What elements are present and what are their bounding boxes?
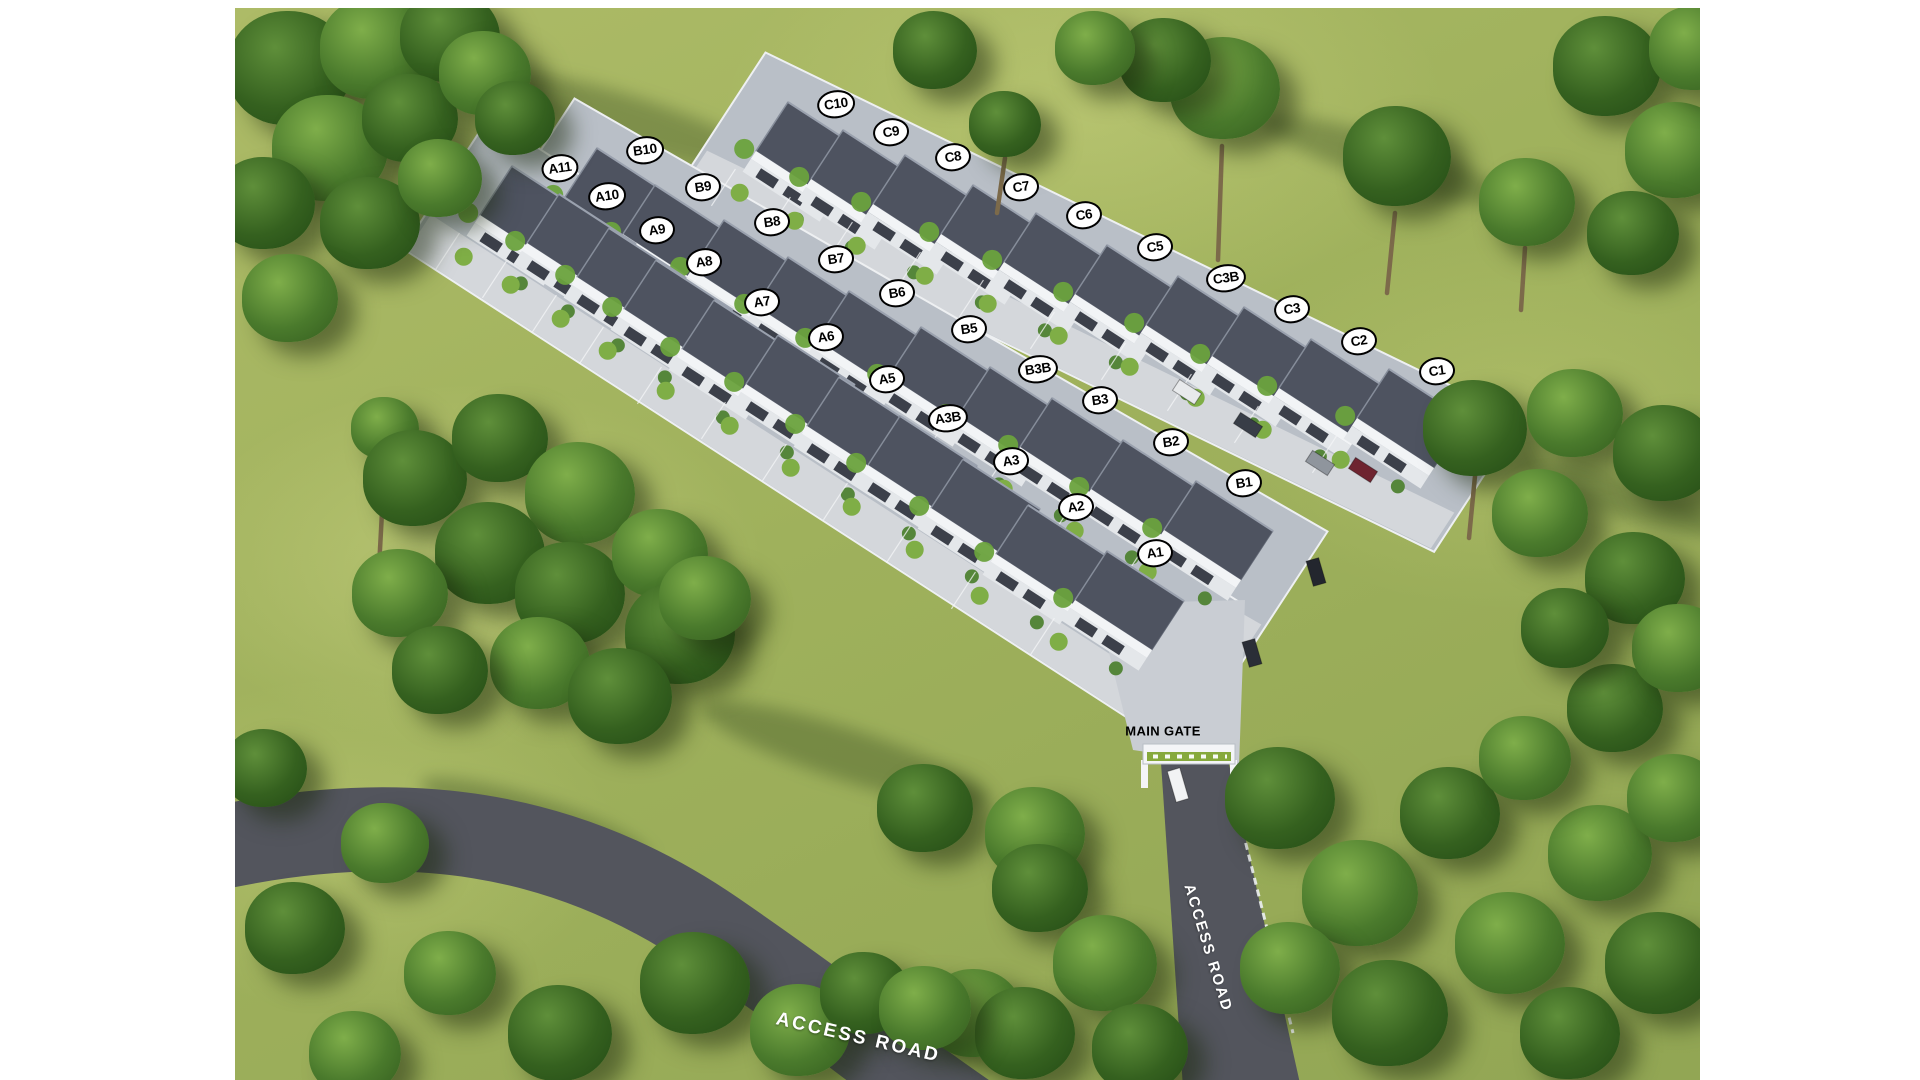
yard-shrub (916, 267, 934, 285)
car (1306, 558, 1326, 587)
yard-shrub (721, 417, 739, 435)
site-plan-scene: A11A10A9A8A7A6A5A3BA3A2A1B10B9B8B7B6B5B3… (235, 8, 1700, 1080)
yard-shrub (455, 248, 473, 266)
main-gate-label: MAIN GATE (1125, 724, 1201, 739)
yard-shrub (906, 541, 924, 559)
yard-shrub (552, 310, 570, 328)
tree-trunk (1218, 146, 1222, 260)
yard-shrub (782, 459, 800, 477)
yard-shrub (979, 295, 997, 313)
yard-shrub (843, 498, 861, 516)
tree-trunk (1521, 248, 1525, 310)
yard-shrub (657, 382, 675, 400)
yard-shrub (1050, 633, 1068, 651)
yard-shrub (1050, 327, 1068, 345)
tree-trunk (1387, 213, 1395, 293)
yard-shrub (971, 587, 989, 605)
yard-shrub (502, 276, 520, 294)
yard-shrub (1121, 358, 1139, 376)
yard-shrub (1332, 451, 1350, 469)
yard-shrub (848, 237, 866, 255)
site-plan-page: A11A10A9A8A7A6A5A3BA3A2A1B10B9B8B7B6B5B3… (0, 0, 1920, 1080)
yard-shrub (786, 212, 804, 230)
estate-render (235, 8, 1700, 1080)
car (1242, 639, 1262, 668)
yard-shrub (599, 342, 617, 360)
yard-shrub (731, 184, 749, 202)
tree-trunk (379, 456, 385, 568)
